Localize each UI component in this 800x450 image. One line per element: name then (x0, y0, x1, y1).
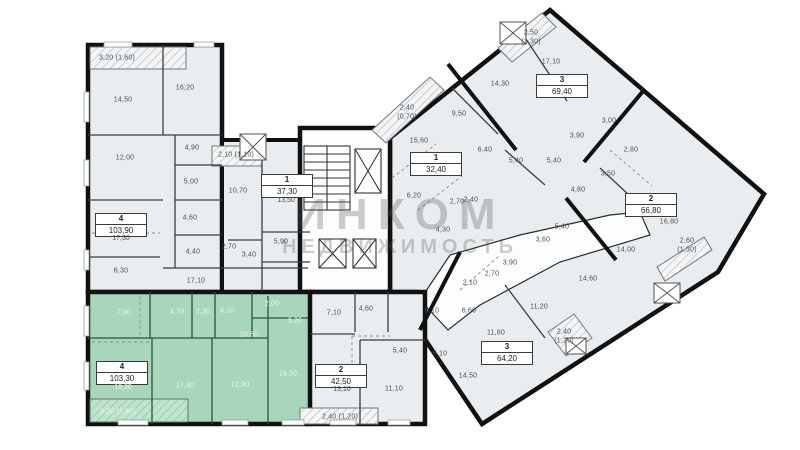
room-area-label: 3,40 (242, 252, 256, 259)
room-area-label: 3,90 (503, 260, 517, 267)
room-area-label: 4,60 (359, 306, 373, 313)
room-area-label: 6,30 (114, 268, 128, 275)
room-area-label: 4,40 (186, 249, 200, 256)
apartment-living-area: 13,50 (277, 197, 295, 204)
room-area-label: 15,60 (410, 138, 429, 145)
room-area-label: 2,40 (1,20) (322, 414, 358, 421)
apartment-total-area: 66,80 (626, 205, 676, 216)
room-area-label: 4,80 (571, 187, 585, 194)
apartment-total-area: 32,40 (411, 164, 461, 175)
room-area-label: 6,20 (407, 193, 421, 200)
room-area-label: 2,70 (485, 271, 499, 278)
apartment-info-box[interactable]: 3 69,40 (536, 74, 588, 98)
room-area-label: (1,30) (521, 39, 541, 46)
room-area-label: 4,60 (183, 215, 197, 222)
floor-plan: ИНКОМ НЕДВИЖИМОСТЬ 3,20 (1,60)14,5016,20… (0, 0, 800, 450)
room-area-label: 4,90 (185, 145, 199, 152)
apartment-living-area: 13,10 (333, 386, 351, 393)
room-area-label: 14,60 (579, 276, 598, 283)
apartment-info-box[interactable]: 1 37,30 (261, 174, 313, 198)
room-area-label: 11,80 (487, 330, 505, 337)
room-area-label: 16,80 (660, 219, 679, 226)
room-area-label: (0,70) (397, 114, 417, 121)
room-area-label: 14,00 (617, 247, 636, 254)
room-area-label: 2,40 (400, 105, 414, 112)
room-area-label: 3,20 (1,60) (99, 55, 135, 62)
room-area-label: 5,40 (393, 348, 407, 355)
room-area-label: 5,10 (433, 351, 447, 358)
apartment-rooms-count: 4 (96, 214, 146, 225)
room-area-label: 6,60 (462, 308, 476, 315)
apartment-info-box[interactable]: 4 103,90 (95, 213, 147, 237)
room-area-label: 3,50 (601, 171, 615, 178)
room-area-label: 3,00 (602, 118, 616, 125)
room-area-label: 5,40 (509, 158, 523, 165)
apartment-rooms-count: 2 (626, 194, 676, 205)
room-area-label: 2,60 (680, 238, 694, 245)
apartment-rooms-count: 2 (316, 365, 366, 376)
apartment-info-box[interactable]: 3 64,20 (481, 341, 533, 365)
room-area-label: 7,10 (327, 310, 341, 317)
room-area-label: 17,10 (187, 278, 206, 285)
room-area-label: 2,80 (624, 147, 638, 154)
room-area-label: 6,40 (478, 147, 492, 154)
room-area-label: 2,40 (464, 197, 478, 204)
room-area-label: 5,10 (425, 308, 439, 315)
room-area-label: 11,20 (530, 304, 548, 311)
room-area-label: 16,20 (176, 85, 195, 92)
room-area-label: 14,50 (114, 97, 133, 104)
room-area-label: 3,90 (570, 133, 584, 140)
apartment-rooms-count: 1 (411, 153, 461, 164)
apartment-total-area: 64,20 (482, 353, 532, 364)
apartment-info-box[interactable]: 2 42,50 (315, 364, 367, 388)
room-area-label: 2,40 (557, 329, 571, 336)
room-area-label: 17,10 (542, 59, 561, 66)
apartment-info-box[interactable]: 1 32,40 (410, 152, 462, 176)
room-area-label: 5,40 (555, 224, 569, 231)
room-area-label: 11,10 (385, 386, 403, 393)
selected-apartment-region[interactable] (88, 292, 310, 424)
apartment-info-box[interactable]: 2 66,80 (625, 193, 677, 217)
room-area-label: 4,30 (436, 227, 450, 234)
apartment-total-area: 37,30 (262, 186, 312, 197)
room-area-label: (1,30) (677, 247, 697, 254)
room-area-label: 2,70 (222, 244, 236, 251)
room-area-label: 5,90 (274, 239, 288, 246)
apartment-rooms-count: 1 (262, 175, 312, 186)
room-area-label: 2,70 (450, 199, 464, 206)
room-area-label: 9,50 (452, 111, 466, 118)
room-area-label: 10,70 (229, 188, 248, 195)
room-area-label: 2,10 (1,10) (218, 152, 254, 159)
room-area-label: 12,00 (116, 155, 135, 162)
apartment-total-area: 69,40 (537, 86, 587, 97)
room-area-label: 3,60 (536, 237, 550, 244)
apartment-living-area: 17,30 (112, 235, 130, 242)
room-area-label: (1,20) (554, 338, 574, 345)
apartment-rooms-count: 3 (537, 75, 587, 86)
room-area-label: 14,30 (491, 81, 510, 88)
room-area-label: 5,00 (184, 179, 198, 186)
room-area-label: 2,10 (463, 280, 477, 287)
apartment-rooms-count: 3 (482, 342, 532, 353)
room-area-label: 14,50 (459, 373, 478, 380)
room-area-label: 5,40 (547, 158, 561, 165)
room-area-label: 2,50 (524, 30, 538, 37)
